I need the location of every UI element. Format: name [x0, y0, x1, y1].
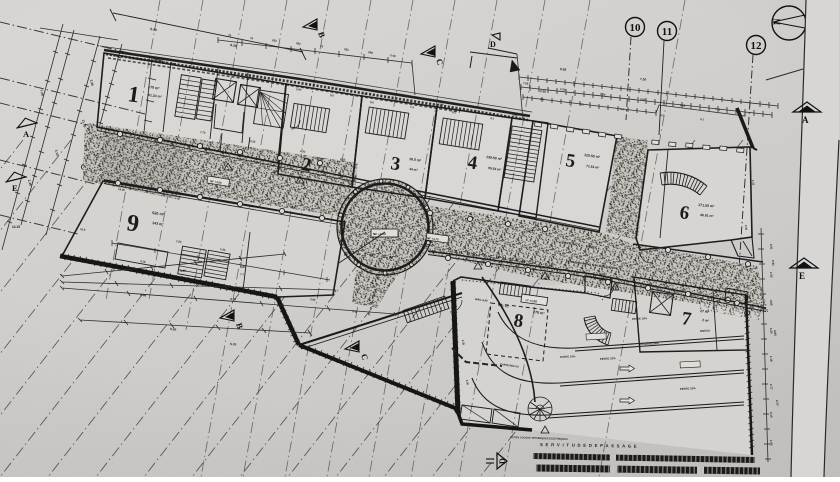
svg-text:1.55: 1.55: [769, 272, 774, 278]
svg-text:2.20: 2.20: [769, 328, 774, 334]
svg-text:2.30: 2.30: [560, 87, 566, 92]
svg-text:14.15: 14.15: [12, 225, 20, 229]
svg-text:D: D: [498, 458, 507, 464]
svg-text:E: E: [12, 183, 18, 193]
svg-text:7.85: 7.85: [523, 81, 529, 86]
svg-text:1.95: 1.95: [769, 440, 774, 446]
svg-text:10: 10: [630, 22, 642, 34]
svg-text:3.60: 3.60: [240, 265, 247, 269]
svg-text:7.30: 7.30: [640, 77, 647, 82]
svg-text:2.62: 2.62: [640, 97, 646, 102]
svg-text:D: D: [490, 40, 496, 49]
svg-text:5.70: 5.70: [230, 342, 237, 347]
svg-text:3.65: 3.65: [773, 330, 777, 336]
svg-text:1.18: 1.18: [769, 356, 774, 362]
svg-text:PENTE 10%: PENTE 10%: [680, 386, 696, 391]
svg-text:A: A: [23, 129, 30, 139]
svg-text:PENTE 10%: PENTE 10%: [632, 316, 648, 321]
svg-text:5.30: 5.30: [170, 327, 177, 332]
svg-text:3.65: 3.65: [769, 300, 774, 306]
svg-text:11: 11: [662, 26, 672, 38]
svg-text:3.10: 3.10: [769, 412, 774, 418]
svg-text:NIVEAU: NIVEAU: [700, 328, 710, 333]
svg-text:PENTE 10%: PENTE 10%: [600, 356, 616, 361]
svg-text:E: E: [799, 271, 805, 281]
svg-text:2.91: 2.91: [769, 244, 774, 250]
svg-text:3.07: 3.07: [230, 297, 237, 302]
svg-text:2.91: 2.91: [744, 225, 748, 231]
svg-text:7.00: 7.00: [715, 107, 721, 112]
svg-text:2.58: 2.58: [540, 89, 547, 94]
svg-text:5.46: 5.46: [140, 293, 147, 298]
svg-text:2.62: 2.62: [680, 103, 686, 108]
svg-text:2.91: 2.91: [771, 260, 775, 266]
svg-text:12: 12: [751, 40, 763, 52]
svg-text:N: N: [772, 18, 782, 25]
svg-text:1.47: 1.47: [120, 267, 127, 271]
svg-text:2.77: 2.77: [769, 384, 774, 390]
svg-text:A: A: [802, 115, 809, 125]
svg-text:1.15: 1.15: [751, 180, 755, 186]
svg-text:7.30: 7.30: [600, 92, 606, 97]
svg-text:2.77: 2.77: [775, 400, 779, 406]
svg-text:3.49: 3.49: [180, 269, 187, 273]
svg-text:9.55: 9.55: [560, 67, 567, 72]
